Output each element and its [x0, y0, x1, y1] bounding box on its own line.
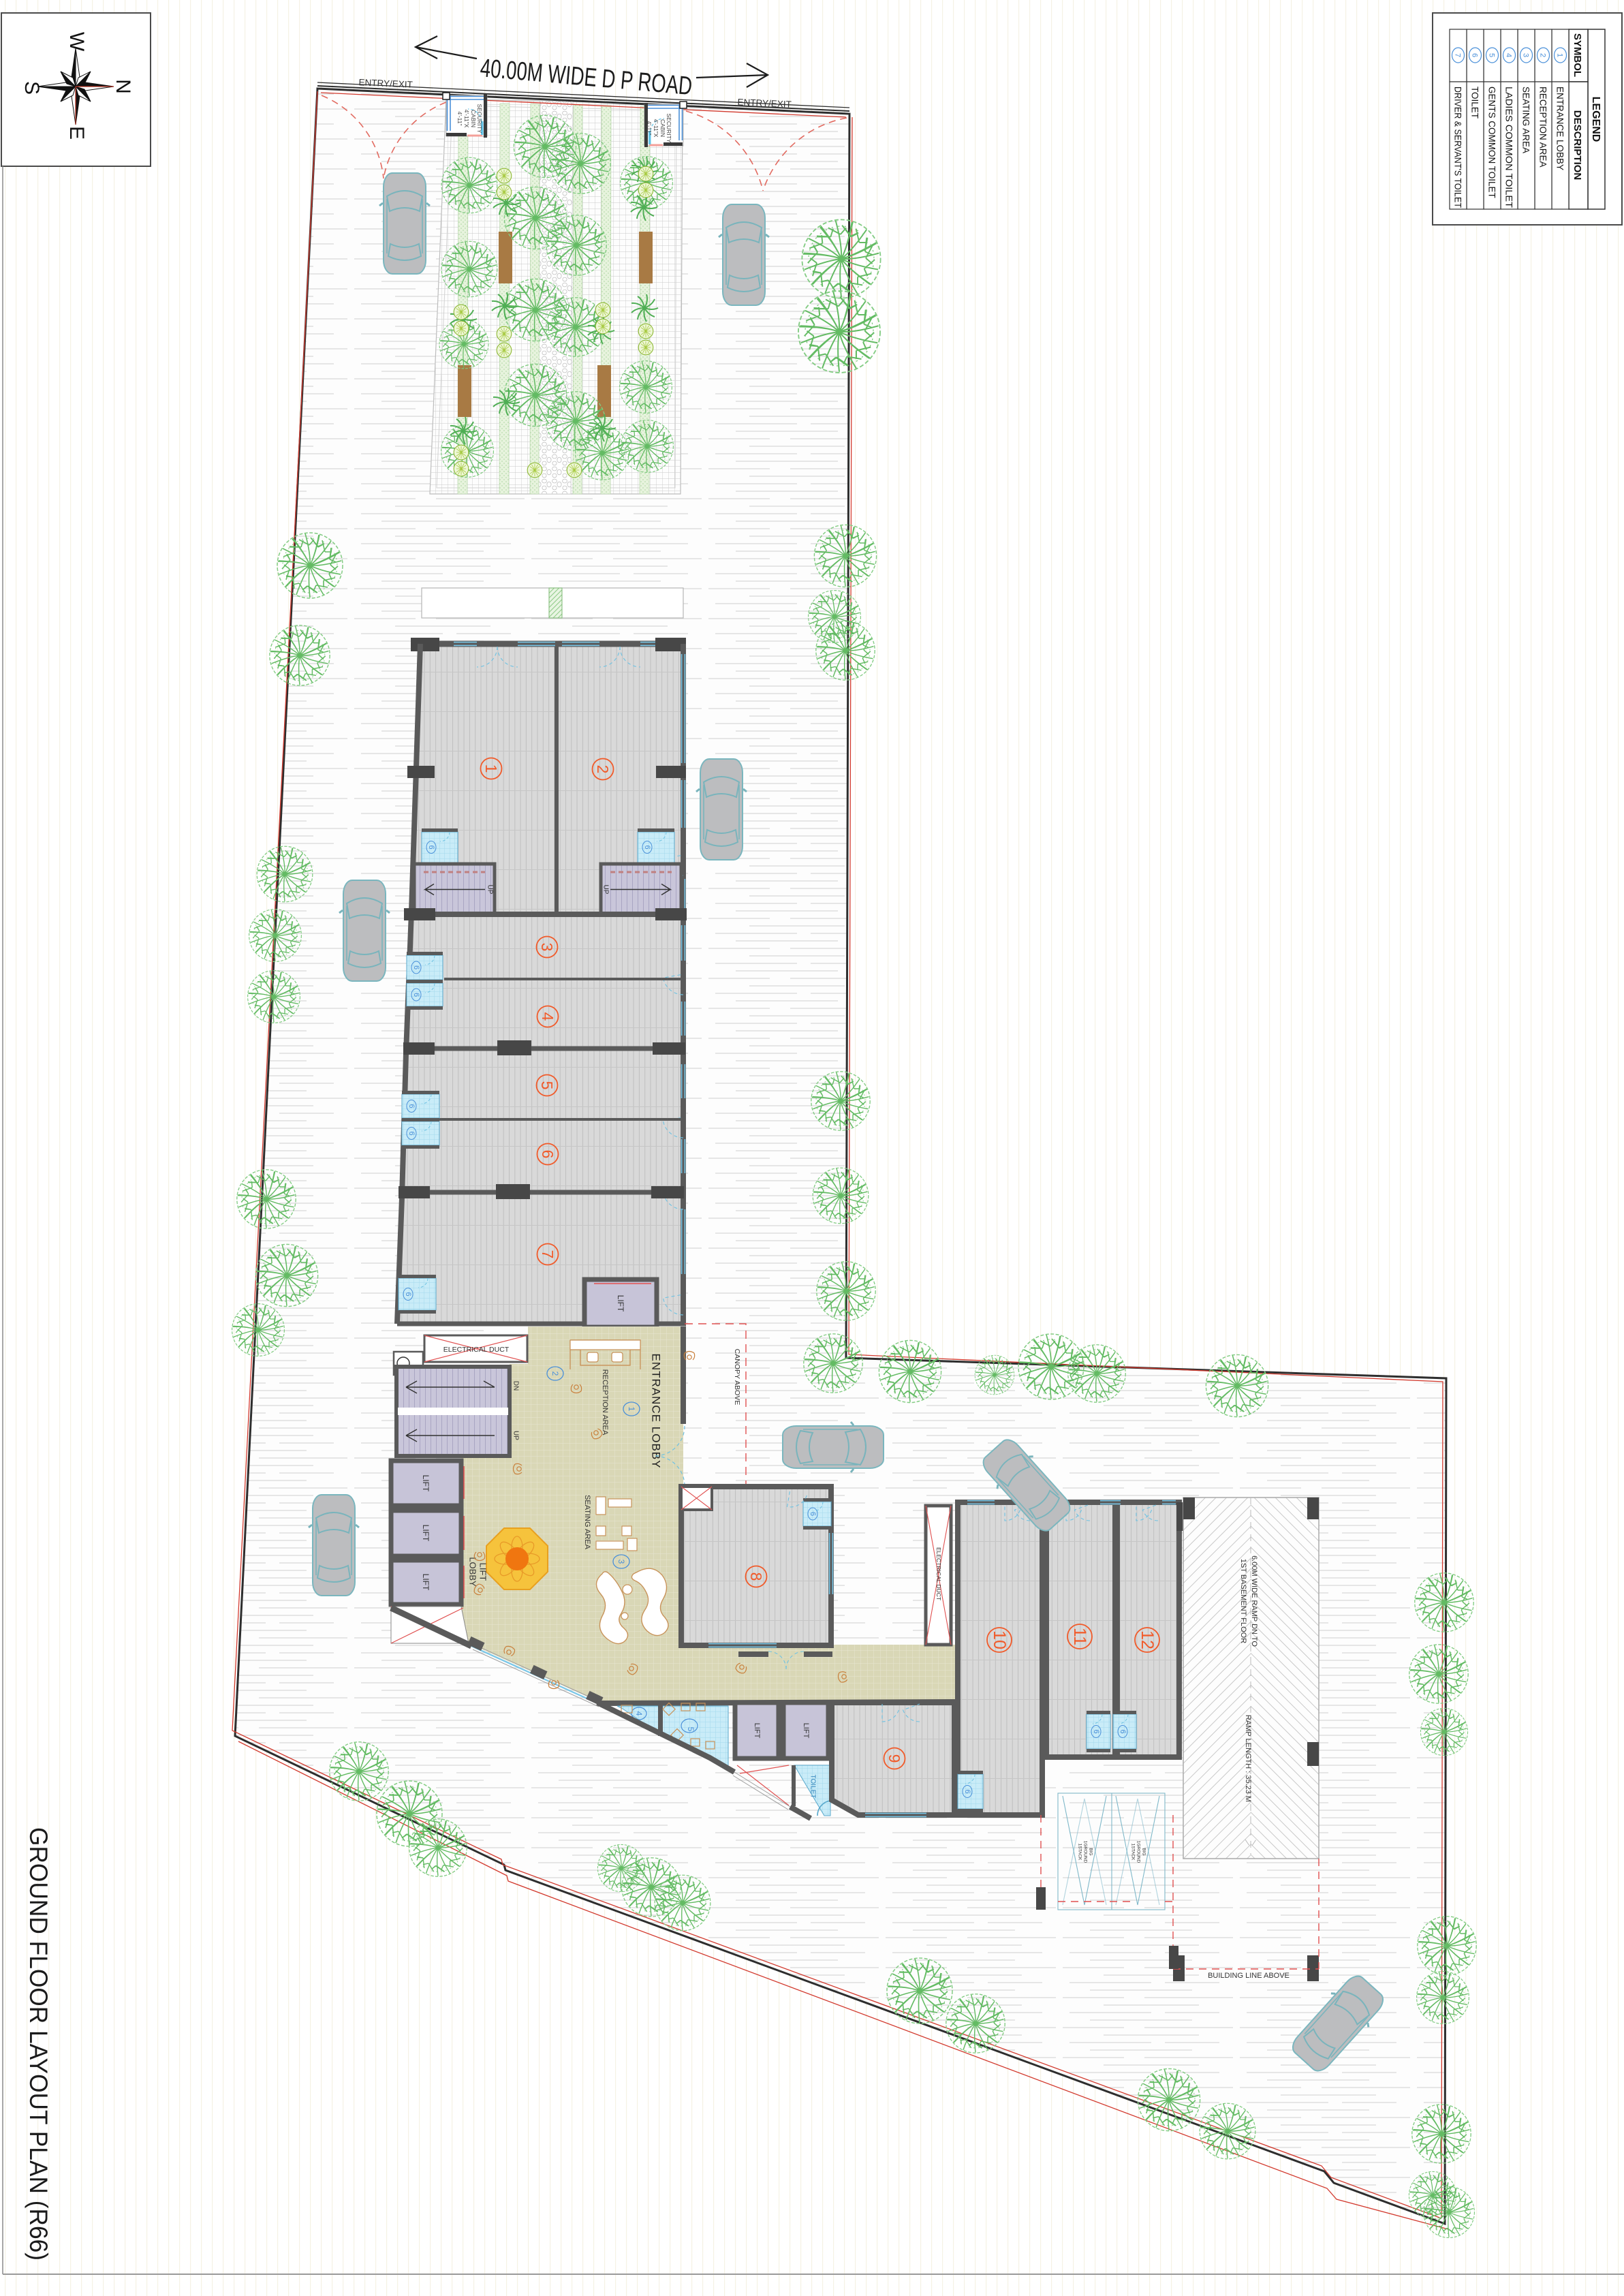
svg-text:SEATING AREA: SEATING AREA [583, 1495, 591, 1550]
svg-text:2: 2 [1539, 53, 1547, 57]
svg-text:RAMP LENGTH : 35.23 M: RAMP LENGTH : 35.23 M [1244, 1715, 1252, 1802]
svg-text:LIFT: LIFT [802, 1723, 810, 1739]
svg-text:BUILDING LINE ABOVE: BUILDING LINE ABOVE [1208, 1972, 1290, 1980]
svg-text:UP: UP [512, 1431, 520, 1440]
svg-text:1STACK: 1STACK [1131, 1844, 1136, 1861]
svg-text:LIFT: LIFT [478, 1563, 488, 1581]
svg-text:N: N [112, 79, 134, 94]
svg-text:W: W [65, 32, 88, 52]
svg-text:6: 6 [427, 845, 435, 849]
svg-text:7: 7 [1454, 53, 1462, 57]
svg-text:4: 4 [1505, 53, 1513, 57]
svg-text:6: 6 [407, 1131, 416, 1135]
svg-text:4: 4 [634, 1711, 644, 1716]
svg-text:5: 5 [686, 1727, 696, 1732]
svg-text:1GROUND: 1GROUND [1083, 1841, 1088, 1863]
svg-text:4'-11": 4'-11" [646, 121, 653, 135]
svg-text:4'-11"X: 4'-11"X [653, 119, 659, 138]
svg-text:CABIN: CABIN [470, 110, 477, 127]
svg-text:LIFT: LIFT [421, 1525, 431, 1542]
svg-text:DESCRIPTION: DESCRIPTION [1572, 110, 1583, 181]
svg-text:4: 4 [539, 1012, 557, 1021]
svg-text:6: 6 [1471, 53, 1479, 57]
svg-text:LOBBY: LOBBY [468, 1557, 478, 1587]
svg-text:10: 10 [990, 1630, 1009, 1649]
svg-text:3: 3 [1522, 53, 1530, 57]
svg-text:LIFT: LIFT [421, 1475, 431, 1492]
svg-text:6.00M WIDE RAMP DN TO: 6.00M WIDE RAMP DN TO [1250, 1555, 1258, 1647]
svg-text:6: 6 [404, 1292, 412, 1296]
svg-text:ELECTRICAL DUCT: ELECTRICAL DUCT [935, 1547, 942, 1600]
svg-text:6: 6 [643, 845, 651, 849]
svg-text:TOILET: TOILET [1470, 87, 1480, 119]
svg-text:S: S [20, 81, 43, 95]
svg-text:6: 6 [1119, 1729, 1127, 1733]
svg-text:1: 1 [627, 1407, 636, 1412]
svg-text:UP: UP [486, 885, 494, 895]
svg-text:6: 6 [1092, 1729, 1100, 1733]
svg-text:5: 5 [538, 1081, 556, 1090]
svg-text:GENTS COMMON TOILET: GENTS COMMON TOILET [1487, 87, 1497, 198]
svg-text:7: 7 [539, 1250, 557, 1259]
svg-text:6: 6 [963, 1789, 971, 1793]
svg-text:6: 6 [407, 1104, 416, 1108]
svg-text:BIG: BIG [1142, 1848, 1146, 1855]
svg-text:TOILET: TOILET [809, 1775, 817, 1799]
svg-text:3: 3 [616, 1560, 626, 1564]
svg-text:UP: UP [602, 885, 610, 895]
svg-text:RECEPTION AREA: RECEPTION AREA [601, 1369, 609, 1436]
svg-text:CABIN: CABIN [659, 119, 666, 137]
svg-text:5: 5 [1488, 53, 1496, 57]
svg-text:DRIVER & SERVANT'S TOILET: DRIVER & SERVANT'S TOILET [1453, 87, 1463, 208]
svg-text:LEGEND: LEGEND [1590, 97, 1602, 142]
svg-text:ELECTRICAL DUCT: ELECTRICAL DUCT [443, 1346, 510, 1354]
svg-text:6: 6 [809, 1512, 817, 1516]
svg-text:BIG: BIG [1089, 1848, 1093, 1855]
svg-text:4'-11": 4'-11" [456, 111, 463, 125]
svg-text:1: 1 [1556, 53, 1564, 57]
svg-text:8: 8 [747, 1572, 765, 1581]
svg-text:SEATING AREA: SEATING AREA [1521, 87, 1531, 153]
svg-text:SYMBOL: SYMBOL [1572, 33, 1583, 77]
svg-text:RECEPTION AREA: RECEPTION AREA [1538, 87, 1548, 168]
svg-text:11: 11 [1070, 1628, 1089, 1645]
svg-text:3: 3 [538, 943, 556, 952]
svg-text:6: 6 [412, 965, 420, 969]
svg-text:4'-11"X: 4'-11"X [463, 110, 470, 128]
svg-text:CANOPY ABOVE: CANOPY ABOVE [733, 1349, 741, 1406]
svg-text:1ST BASEMENT FLOOR: 1ST BASEMENT FLOOR [1239, 1559, 1247, 1643]
svg-text:2: 2 [550, 1371, 560, 1376]
svg-text:LIFT: LIFT [616, 1295, 625, 1312]
svg-text:1STACK: 1STACK [1078, 1844, 1082, 1861]
svg-text:LADIES COMMON TOILET: LADIES COMMON TOILET [1504, 87, 1514, 208]
svg-text:LIFT: LIFT [753, 1723, 761, 1739]
svg-text:1: 1 [482, 764, 500, 773]
svg-text:6: 6 [539, 1150, 557, 1159]
svg-text:E: E [65, 126, 88, 140]
svg-text:12: 12 [1138, 1630, 1157, 1649]
svg-text:ENTRANCE LOBBY: ENTRANCE LOBBY [1555, 87, 1565, 170]
svg-text:ENTRANCE LOBBY: ENTRANCE LOBBY [650, 1354, 663, 1469]
svg-text:6: 6 [412, 993, 420, 997]
svg-text:1GROUND: 1GROUND [1136, 1841, 1141, 1863]
svg-text:LIFT: LIFT [421, 1574, 431, 1591]
svg-text:2: 2 [594, 765, 612, 774]
svg-text:DN: DN [512, 1381, 520, 1391]
svg-text:GROUND FLOOR LAYOUT PLAN (R66): GROUND FLOOR LAYOUT PLAN (R66) [25, 1827, 52, 2261]
svg-text:9: 9 [886, 1754, 903, 1763]
